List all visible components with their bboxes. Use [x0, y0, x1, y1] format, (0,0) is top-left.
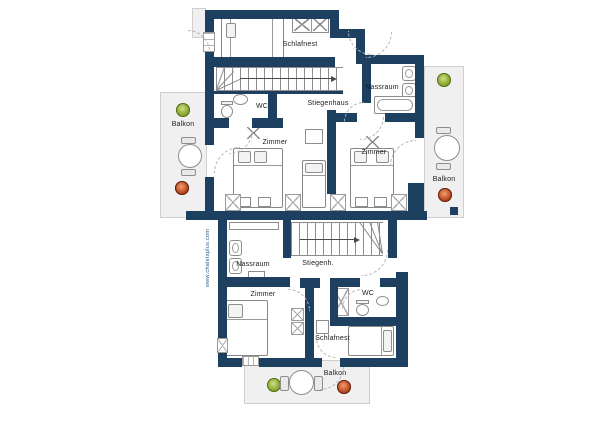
wall — [415, 55, 424, 138]
bed-line — [234, 165, 282, 166]
room-label-stiegenh: Stiegenh. — [293, 259, 343, 268]
sink-icon — [233, 94, 248, 105]
post-marker — [450, 207, 458, 215]
plant-icon — [437, 73, 451, 87]
sink-icon — [229, 240, 242, 256]
bathtub-icon — [374, 96, 416, 114]
wall — [330, 287, 338, 320]
chair-icon — [181, 137, 196, 144]
pillow-icon — [383, 330, 392, 352]
wall — [396, 272, 408, 367]
chair-icon — [280, 376, 289, 391]
window-icon — [391, 194, 407, 211]
wall — [186, 211, 427, 220]
balcony-right: Balkon — [424, 66, 464, 218]
room-label-nassraum-upper: Nassraum — [357, 83, 407, 92]
bed-foot — [374, 197, 387, 207]
window-icon — [225, 194, 241, 211]
bed-line — [303, 175, 325, 176]
room-label-zimmer-lower: Zimmer — [238, 290, 288, 299]
chair-icon — [436, 163, 451, 170]
plant-icon — [176, 103, 190, 117]
table-icon — [178, 144, 202, 168]
window-icon — [242, 356, 259, 366]
bed-line — [381, 327, 382, 355]
pillow-icon — [226, 23, 236, 38]
room-label-schlafnest-lower: Schlafnest — [305, 334, 360, 343]
bed-icon — [302, 160, 326, 208]
plant-icon — [337, 380, 351, 394]
room-label-zimmer-right: Zimmer — [349, 148, 399, 157]
bed-icon — [224, 300, 268, 356]
wall — [280, 277, 290, 287]
wardrobe-x — [313, 18, 327, 31]
window-icon — [330, 194, 346, 211]
plant-icon — [175, 181, 189, 195]
pillow-icon — [228, 304, 243, 318]
pillow-icon — [254, 151, 267, 163]
wall — [205, 10, 214, 32]
bed-foot — [355, 197, 368, 207]
shelf-icon — [305, 129, 323, 144]
counter-icon — [229, 222, 279, 230]
direction-arrow-head — [354, 237, 360, 243]
direction-arrow-icon — [240, 78, 332, 79]
watermark-text: www.chaletsplus.com — [205, 221, 214, 287]
wall — [205, 57, 335, 67]
wardrobe-x — [294, 18, 310, 31]
wall — [330, 317, 397, 326]
pillow-icon — [305, 163, 323, 173]
table-icon — [289, 370, 314, 395]
bed-line — [225, 319, 267, 320]
sink-icon — [402, 66, 416, 81]
wall — [327, 110, 336, 194]
room-label-schlafnest-upper: Schlafnest — [270, 40, 330, 49]
room-label-nassraum-lower: Nassraum — [228, 260, 278, 269]
wall — [252, 118, 283, 128]
chair-icon — [436, 127, 451, 134]
wardrobe-divider — [311, 17, 312, 32]
wall — [218, 358, 242, 367]
chair-icon — [181, 169, 196, 176]
plant-icon — [438, 188, 452, 202]
stairs-icon — [216, 67, 343, 91]
wall — [388, 220, 397, 258]
table-icon — [434, 135, 460, 161]
window-icon — [285, 194, 301, 211]
room-label-wc-upper: WC — [252, 102, 272, 111]
wall — [380, 278, 397, 287]
room-label-zimmer-left: Zimmer — [250, 138, 300, 147]
room-label-stiegenhaus: Stiegenhaus — [298, 99, 358, 108]
bed-icon — [350, 148, 394, 208]
direction-arrow-icon — [300, 239, 355, 240]
wall — [283, 220, 291, 258]
wall — [227, 277, 281, 287]
wall — [205, 118, 229, 128]
wall — [305, 280, 314, 360]
wall — [385, 113, 424, 122]
window-icon — [217, 338, 228, 353]
dresser-icon — [291, 322, 304, 335]
wall — [330, 278, 360, 287]
room-label-wc-lower: WC — [358, 289, 378, 298]
nightstand-icon — [316, 320, 329, 334]
bed-line — [351, 165, 393, 166]
room-label-balkon-right: Balkon — [425, 175, 463, 184]
floorplan-canvas: Balkon Balkon Balkon — [0, 0, 600, 425]
wall — [205, 10, 339, 19]
door-swing-icon — [360, 116, 384, 140]
plant-icon — [267, 378, 281, 392]
stair-edge — [214, 91, 343, 94]
direction-arrow-head — [331, 76, 337, 82]
toilet-icon — [221, 105, 233, 118]
balcony-left: Balkon — [160, 92, 207, 218]
bed-foot — [258, 197, 271, 207]
room-label-balkon-left: Balkon — [163, 120, 203, 129]
door-swing-icon — [362, 250, 388, 276]
